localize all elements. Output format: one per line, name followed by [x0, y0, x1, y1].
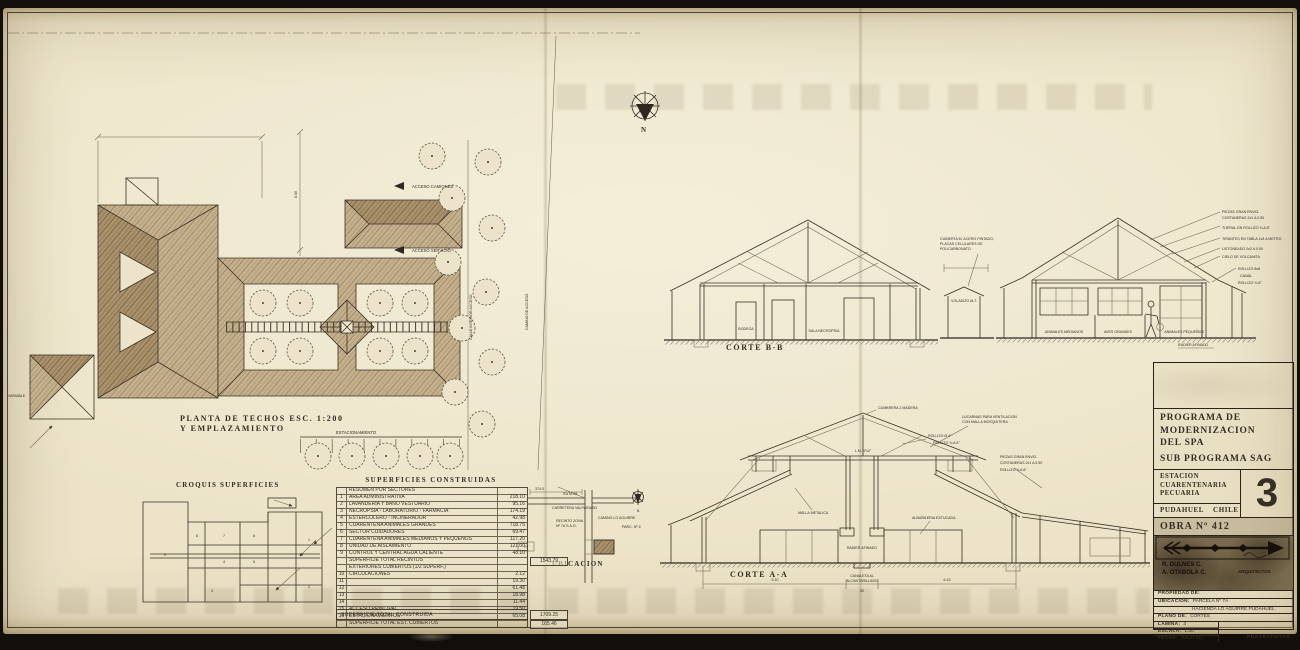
corte-aa-title: CORTE A-A	[730, 570, 788, 579]
plan-dimension: 8.60	[294, 191, 298, 198]
construction-note: PIEZAS GRAN ENVIG.	[1000, 455, 1037, 459]
construction-note: PIEZAS GRAN ENVIG.	[1222, 210, 1259, 214]
floor-note: RADIER AFINADO	[1178, 343, 1209, 347]
croquis-zone: 9	[164, 553, 166, 557]
croquis-zone: 7	[223, 534, 225, 538]
areas-table: RESUMEN POR SECTORES 1AREA ADMINISTRATIV…	[336, 487, 528, 628]
ridge-note: CUMBRERA 2 MADERA	[878, 406, 918, 410]
map-note: CAMINO LO AGUIRRE	[598, 516, 636, 520]
table-row: 9CONTROL Y CENTRAL AGUA CALIENTE48.10	[337, 550, 527, 557]
acceso-servicio-label: ACCESO SERVICIO	[412, 248, 452, 253]
access-arrow-icon	[394, 182, 404, 190]
log-note: ROLLIZO ¾ A 8"	[933, 441, 960, 445]
dimension-text: 30	[860, 589, 864, 593]
map-dimension: 374.0	[535, 487, 544, 491]
table-row: 1261.48	[337, 585, 527, 592]
room-label: BODEGA	[738, 327, 754, 331]
construction-note: ROLLIZO ¾ A 8"	[1000, 468, 1027, 472]
masonry-note: ALBAÑILERIA ESTUCADA	[912, 515, 956, 520]
table-title: SUPERFICIES CONSTRUIDAS	[336, 476, 526, 484]
gutter-note: ALCANTARILLADO	[846, 579, 878, 583]
zone-label2: Nº 7A S.A.G.	[556, 524, 577, 528]
proyectistas-cell: PROYECTISTAS	[1219, 622, 1293, 642]
construction-note: COSTANERAS 2x1 A 0.50	[1000, 461, 1042, 465]
corte-bb-title: CORTE B-B	[726, 343, 784, 352]
roof-note: PLACAS CELULARES DE	[940, 242, 983, 246]
titleblock-blank-cell	[1154, 363, 1293, 409]
table-row: 1119.30	[337, 578, 527, 585]
table-grand-total-row: SUPERFICIE TOTAL CONSTRUIDA 1709.25	[336, 609, 528, 620]
sheet-number: 3	[1240, 470, 1293, 517]
field-lamina: LAMINA:3	[1154, 622, 1218, 629]
architect-names: R. DULNES C. A. OTABOLA C.	[1162, 562, 1206, 577]
construction-note: TIRANTES EN TABLA 1x4 A METRO	[1222, 237, 1282, 241]
beam-note: L.M. 4"x2"	[855, 449, 872, 453]
titleblock-bottom: LAMINA:3 ESCALA:1:50 FECHA:JULIO 91 PROY…	[1154, 622, 1293, 642]
table-row: 4ESTERCOLERO - INCINERADOR42.98	[337, 515, 527, 522]
dimension-text: 6.15	[944, 578, 951, 582]
croquis-zone: 5	[253, 560, 255, 564]
room-label: ANIMALES MEDIANOS	[1045, 330, 1084, 334]
section-aa	[660, 410, 1150, 589]
city-label: PUDAHUEL CHILE	[1154, 503, 1240, 517]
roof-note: POLICARBONATO	[940, 247, 971, 251]
street-label: CAMINO DE ACCESO	[525, 293, 529, 330]
grand-total-value-box: 1709.25	[530, 610, 568, 620]
croquis-zone: 3	[211, 589, 213, 593]
croquis-zone: 2	[308, 585, 310, 589]
table-row: 6SECTOR CUIDADORES69.47	[337, 529, 527, 536]
table-subtotal-row: SUPERFICIE TOTAL RECINTOS 1543.79	[337, 557, 527, 564]
vent-note: LUCARNAS PARA VENTILACION	[962, 415, 1017, 419]
parcel-label: PARC. Nº 5	[622, 525, 641, 529]
table-row: 10CIRCULACIONES2.12	[337, 571, 527, 578]
field-fecha: FECHA:JULIO 91	[1154, 636, 1218, 642]
table-row: 1411.44	[337, 599, 527, 606]
drawing-linework: PLANTA DE TECHOS ESC. 1:200 Y EMPLAZAMIE…	[0, 0, 1300, 650]
person-figure	[1145, 301, 1164, 337]
croquis-sketch	[30, 426, 332, 602]
construction-note: CIELO DE VOLCANITA	[1222, 255, 1260, 259]
table-row: 7CUARENTENA ANIMALES MEDIANOS Y PEQUEÑOS…	[337, 536, 527, 543]
table-row: 8UNIDAD DE AISLAMIENTO121.00	[337, 543, 527, 550]
croquis-zone: 1	[308, 538, 310, 542]
table-row: 3NECROPSIA - LABORATORIO - FARMACIA174.1…	[337, 508, 527, 515]
street-label: CALLE INTERIOR ACCESO	[469, 294, 473, 340]
log-note: ROLLIZO Ø 4"	[928, 434, 952, 438]
eave-note: CANAL	[1240, 274, 1252, 278]
title-block: PROGRAMA DE MODERNIZACION DEL SPA SUB PR…	[1153, 362, 1294, 630]
slab-note: RADIER AFINADO	[847, 546, 878, 550]
table-row: 5CUARENTENA ANIMALES GRANDES718.75	[337, 522, 527, 529]
table-row: 1AREA ADMINISTRATIVA218.10	[337, 494, 527, 501]
construction-note: LISTONEADO 2x2 A 0.50	[1222, 247, 1263, 251]
room-label: AVES GRANDES	[1104, 330, 1133, 334]
program-title: PROGRAMA DE MODERNIZACION DEL SPA SUB PR…	[1154, 409, 1293, 470]
plan-title: PLANTA DE TECHOS ESC. 1:200	[180, 414, 344, 423]
table-total-est-row: SUPERFICIE TOTAL EST. CUBIERTOS 165.46	[337, 620, 527, 627]
total-est-value-box: 165.46	[530, 620, 568, 629]
table-row: 1318.98	[337, 592, 527, 599]
route-label2: CARRETERA VALPARAISO	[552, 506, 597, 510]
map-north-letter: N	[637, 509, 640, 513]
croquis-zone: 8	[196, 534, 198, 538]
table-row: 2LAVANDERIA Y BAÑO VESTUARIO95.16	[337, 501, 527, 508]
room-label: ANIMALES PEQUEÑOS	[1164, 329, 1204, 334]
eave-note: ROLLIZO 8x8	[1238, 267, 1260, 271]
roof-note: CUBIERTA M. ACERO PINTADO,	[940, 237, 994, 241]
eave-note: ROLLIZO ¾ 8"	[1238, 281, 1262, 285]
gutter-note: CANALETA AL	[850, 574, 874, 578]
north-compass-icon	[630, 91, 660, 121]
zone-label: RECINTO ZONA	[556, 519, 584, 523]
architect-role: ARQUITECTOS	[1238, 569, 1271, 574]
vent-note: CON MALLA MOSQUITERA	[962, 420, 1008, 424]
roof-plan	[8, 33, 640, 470]
croquis-zone: 4	[223, 560, 225, 564]
table-header: RESUMEN POR SECTORES	[347, 488, 497, 494]
field-ubicacion: UBICACION:PARCELA Nº 7A	[1154, 599, 1293, 607]
croquis-zone: 6	[253, 534, 255, 538]
variable-label: VARIABLE	[8, 394, 26, 398]
architects-stamp: R. DULNES C. A. OTABOLA C. ARQUITECTOS	[1154, 536, 1293, 591]
dimension-text: 5.10	[772, 578, 779, 582]
work-number: OBRA Nº 412	[1154, 518, 1293, 536]
field-propiedad: PROPIEDAD DE:	[1154, 591, 1293, 599]
scanned-blueprint-sheet: PLANTA DE TECHOS ESC. 1:200 Y EMPLAZAMIE…	[0, 0, 1300, 650]
canopy-note: VOLADIZO ALT.	[951, 299, 977, 303]
mesh-note: MALLA METALICA	[798, 511, 829, 515]
location-map	[518, 487, 644, 583]
acceso-camiones-label: ACCESO CAMIONES	[412, 184, 453, 189]
croquis-title: CROQUIS SUPERFICIES	[176, 481, 280, 489]
table-section-header: EXTERIORES CUBIERTOS (1/2 SUPERF.)	[337, 564, 527, 571]
route-label: RUTA 68	[563, 492, 577, 496]
construction-note: COSTANERAS 2x1 A 0.50	[1222, 216, 1264, 220]
plan-title-line2: Y EMPLAZAMIENTO	[180, 424, 285, 433]
north-letter: N	[641, 126, 647, 134]
station-and-sheet-number: ESTACION CUARENTENARIA PECUARIA PUDAHUEL…	[1154, 470, 1293, 518]
stamp-ornament-icon	[1154, 536, 1291, 560]
field-escala: ESCALA:1:50	[1154, 629, 1218, 636]
station-name: ESTACION CUARENTENARIA PECUARIA	[1154, 470, 1240, 503]
parking-label: ESTACIONAMIENTO	[336, 430, 377, 435]
construction-note: TIJERAL EN ROLLIZO ¾ A 8"	[1222, 226, 1271, 230]
room-label: SALA NECROPSIA	[808, 329, 840, 333]
subtotal-value-box: 1543.79	[530, 557, 568, 566]
